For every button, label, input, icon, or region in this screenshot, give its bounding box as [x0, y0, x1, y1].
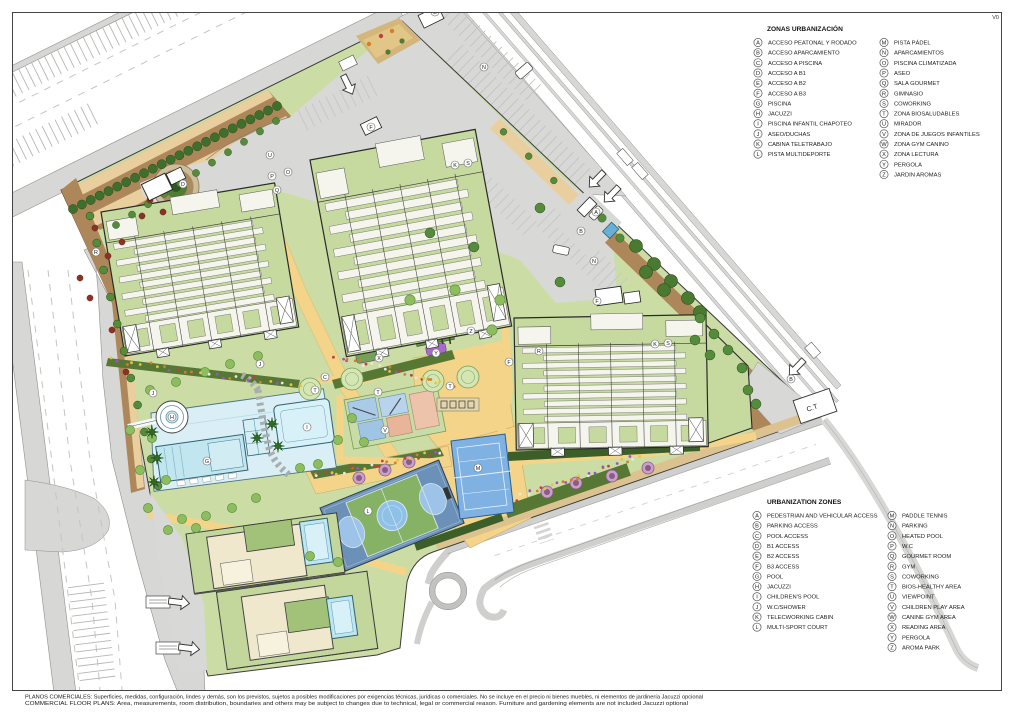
svg-text:B: B [579, 229, 583, 235]
svg-text:U: U [890, 595, 894, 601]
svg-text:PERGOLA: PERGOLA [902, 635, 930, 641]
svg-text:U: U [268, 153, 272, 159]
svg-text:S: S [666, 341, 670, 347]
svg-text:COWORKING: COWORKING [894, 101, 932, 107]
svg-text:P: P [270, 174, 274, 180]
svg-text:ASEO/DUCHAS: ASEO/DUCHAS [768, 132, 810, 138]
svg-text:APARCAMIENTOS: APARCAMIENTOS [894, 51, 944, 57]
svg-text:I: I [306, 425, 308, 431]
svg-text:N: N [882, 51, 886, 57]
svg-text:PISCINA: PISCINA [768, 101, 791, 107]
svg-text:P: P [882, 71, 886, 77]
svg-text:A: A [594, 210, 598, 216]
svg-text:S: S [890, 574, 894, 580]
svg-text:V0: V0 [992, 15, 999, 21]
svg-text:GYM: GYM [902, 564, 915, 570]
svg-text:O: O [882, 61, 887, 67]
svg-text:POOL ACCESS: POOL ACCESS [767, 534, 808, 540]
svg-text:CHILDREN'S POOL: CHILDREN'S POOL [767, 595, 820, 601]
svg-text:O: O [890, 534, 895, 540]
svg-text:HEATED POOL: HEATED POOL [902, 534, 944, 540]
svg-text:POOL: POOL [767, 574, 784, 580]
svg-text:P: P [890, 544, 894, 550]
svg-text:D: D [755, 544, 759, 550]
svg-text:ZONA BIOSALUDABLES: ZONA BIOSALUDABLES [894, 112, 960, 118]
svg-text:ACCESO A B2: ACCESO A B2 [768, 81, 806, 87]
svg-text:B2 ACCESS: B2 ACCESS [767, 554, 799, 560]
svg-text:JARDIN AROMAS: JARDIN AROMAS [894, 172, 941, 178]
svg-text:PLANOS COMERCIALES: Superficie: PLANOS COMERCIALES: Superficies, medidas… [25, 695, 703, 701]
svg-text:L: L [367, 509, 370, 515]
svg-text:B1 ACCESS: B1 ACCESS [767, 544, 799, 550]
svg-text:D: D [756, 71, 760, 77]
svg-text:N: N [592, 259, 596, 265]
svg-text:G: G [756, 101, 760, 107]
svg-text:CHILDREN PLAY AREA: CHILDREN PLAY AREA [902, 605, 965, 611]
svg-text:PARKING ACCESS: PARKING ACCESS [767, 524, 818, 530]
svg-text:ZONA DE JUEGOS INFANTILES: ZONA DE JUEGOS INFANTILES [894, 132, 980, 138]
svg-text:B: B [756, 51, 760, 57]
svg-text:MIRADOR: MIRADOR [894, 122, 921, 128]
svg-text:W.C/SHOWER: W.C/SHOWER [767, 605, 806, 611]
svg-text:O: O [286, 170, 290, 176]
svg-text:F: F [756, 91, 760, 97]
svg-text:E: E [755, 554, 759, 560]
svg-text:C: C [323, 375, 327, 381]
svg-text:X: X [377, 356, 381, 362]
svg-text:ACCESO A PISCINA: ACCESO A PISCINA [768, 61, 822, 67]
svg-text:M: M [882, 41, 887, 47]
svg-text:X: X [882, 152, 886, 158]
svg-text:SALA GOURMET: SALA GOURMET [894, 81, 940, 87]
svg-text:ZONAS URBANIZACIÓN: ZONAS URBANIZACIÓN [767, 24, 843, 33]
svg-text:W.C: W.C [902, 544, 913, 550]
svg-text:GOURMET ROOM: GOURMET ROOM [902, 554, 951, 560]
svg-text:Q: Q [890, 554, 895, 560]
svg-text:Q: Q [275, 188, 279, 194]
svg-text:PADDLE TENNIS: PADDLE TENNIS [902, 514, 948, 520]
svg-text:E: E [756, 81, 760, 87]
svg-text:J: J [259, 362, 262, 368]
svg-text:K: K [756, 142, 760, 148]
svg-text:T: T [882, 112, 886, 118]
svg-text:T: T [890, 585, 894, 591]
svg-text:COMMERCIAL FLOOR PLANS: Area,: COMMERCIAL FLOOR PLANS: Area, measuremen… [25, 701, 688, 707]
svg-text:R: R [537, 349, 541, 355]
svg-text:A: A [756, 41, 760, 47]
svg-text:N: N [890, 524, 894, 530]
svg-text:JACUZZI: JACUZZI [768, 112, 792, 118]
svg-text:S: S [466, 161, 470, 167]
svg-text:V: V [890, 605, 894, 611]
svg-text:PERGOLA: PERGOLA [894, 162, 922, 168]
svg-text:A: A [755, 514, 759, 520]
svg-text:M: M [476, 466, 481, 472]
svg-text:ACCESO APARCAMIENTO: ACCESO APARCAMIENTO [768, 51, 840, 57]
svg-text:B: B [755, 524, 759, 530]
svg-text:N: N [482, 65, 486, 71]
svg-text:CABINA TELETRABAJO: CABINA TELETRABAJO [768, 142, 832, 148]
svg-text:ASEO: ASEO [894, 71, 911, 77]
svg-text:PISTA MULTIDEPORTE: PISTA MULTIDEPORTE [768, 152, 831, 158]
svg-text:K: K [453, 163, 457, 169]
svg-text:ZONA LECTURA: ZONA LECTURA [894, 152, 939, 158]
svg-text:AROMA PARK: AROMA PARK [902, 645, 940, 651]
svg-text:B: B [789, 377, 793, 383]
svg-text:Z: Z [890, 645, 894, 651]
svg-text:J: J [757, 132, 760, 138]
svg-text:B3 ACCESS: B3 ACCESS [767, 564, 799, 570]
svg-text:BIOS-HEALTHY AREA: BIOS-HEALTHY AREA [902, 585, 961, 591]
svg-text:W: W [881, 142, 887, 148]
svg-text:C: C [756, 61, 760, 67]
svg-text:H: H [170, 415, 174, 421]
svg-text:ACCESO A B1: ACCESO A B1 [768, 71, 806, 77]
svg-text:ACCESO A B3: ACCESO A B3 [768, 91, 806, 97]
svg-text:ZONA GYM CANINO: ZONA GYM CANINO [894, 142, 949, 148]
svg-text:X: X [890, 625, 894, 631]
svg-text:C: C [755, 534, 759, 540]
svg-text:MULTI-SPORT COURT: MULTI-SPORT COURT [767, 625, 828, 631]
svg-text:Z: Z [882, 172, 886, 178]
svg-text:VIEWPOINT: VIEWPOINT [902, 595, 935, 601]
svg-text:L: L [756, 152, 759, 158]
svg-text:Y: Y [434, 351, 438, 357]
svg-text:GIMNASIO: GIMNASIO [894, 91, 923, 97]
svg-text:PISCINA CLIMATIZADA: PISCINA CLIMATIZADA [894, 61, 957, 67]
svg-text:R: R [890, 564, 894, 570]
svg-text:READING AREA: READING AREA [902, 625, 946, 631]
svg-text:K: K [653, 342, 657, 348]
svg-text:M: M [890, 514, 895, 520]
svg-text:U: U [882, 122, 886, 128]
svg-text:G: G [205, 459, 209, 465]
svg-text:PARKING: PARKING [902, 524, 928, 530]
svg-text:V: V [882, 132, 886, 138]
svg-text:PISCINA INFANTIL CHAPOTEO: PISCINA INFANTIL CHAPOTEO [768, 122, 852, 128]
svg-text:PEDESTRIAN AND VEHICULAR ACCES: PEDESTRIAN AND VEHICULAR ACCESS [767, 514, 878, 520]
svg-text:H: H [755, 585, 759, 591]
svg-text:H: H [756, 112, 760, 118]
svg-text:ACCESO PEATONAL Y RODADO: ACCESO PEATONAL Y RODADO [768, 41, 857, 47]
svg-text:CANINE GYM AREA: CANINE GYM AREA [902, 615, 956, 621]
svg-text:S: S [882, 101, 886, 107]
svg-text:F: F [755, 564, 759, 570]
svg-text:G: G [755, 574, 759, 580]
svg-text:JACUZZI: JACUZZI [767, 585, 791, 591]
svg-text:TELECWORKING CABIN: TELECWORKING CABIN [767, 615, 833, 621]
svg-text:R: R [94, 250, 98, 256]
svg-text:Y: Y [882, 162, 886, 168]
svg-text:L: L [755, 625, 758, 631]
svg-text:Y: Y [890, 635, 894, 641]
svg-text:V: V [383, 428, 387, 434]
svg-text:R: R [882, 91, 886, 97]
svg-text:D: D [181, 182, 185, 188]
svg-text:W: W [889, 615, 895, 621]
svg-text:J: J [152, 391, 155, 397]
svg-text:J: J [756, 605, 759, 611]
svg-text:URBANIZATION ZONES: URBANIZATION ZONES [767, 499, 842, 506]
svg-text:Q: Q [882, 81, 887, 87]
svg-text:K: K [755, 615, 759, 621]
svg-text:COWORKING: COWORKING [902, 574, 940, 580]
svg-text:PISTA PÁDEL: PISTA PÁDEL [894, 40, 931, 47]
